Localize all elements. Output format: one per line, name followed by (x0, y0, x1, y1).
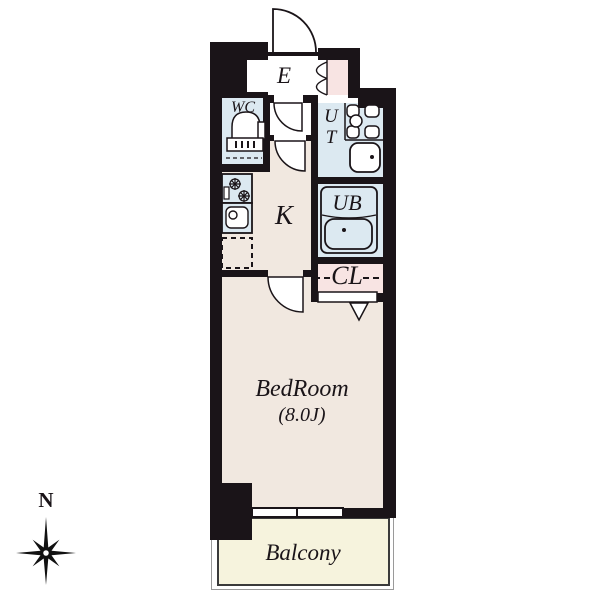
kitchen-door-swing-icon (275, 141, 305, 171)
wc-label: WC (231, 99, 255, 117)
bedroom-label: BedRoom (8.0J) (255, 376, 348, 428)
utility-label: U T (324, 106, 338, 148)
utility-label-line1: U (324, 106, 338, 127)
kitchen-label: K (275, 200, 293, 231)
compass-rose-icon (16, 517, 76, 585)
kitchen-sink-icon (222, 203, 252, 233)
unit-bath-label: UB (332, 190, 361, 216)
hallway-door-swing-icon (274, 103, 302, 131)
bedroom-door-swing-icon (268, 277, 303, 312)
utility-label-line2: T (324, 127, 338, 148)
compass-north-label: N (38, 488, 53, 513)
window-icon (252, 508, 343, 517)
closet-label: CL (331, 261, 363, 291)
washbasin-icon (350, 143, 380, 172)
floor-plan: N E WC U T UB K CL BedRoom (8.0J) Balcon… (0, 0, 600, 600)
entrance-door-swing-icon (273, 9, 316, 52)
laundry-counter-icon (345, 103, 383, 140)
bedroom-size: (8.0J) (255, 402, 348, 428)
stove-icon (222, 174, 252, 203)
entrance-label: E (277, 63, 291, 89)
balcony-label: Balcony (265, 540, 340, 566)
toilet-icon (226, 112, 265, 158)
bedroom-name: BedRoom (255, 376, 348, 402)
closet-door-arrow-icon (318, 292, 377, 320)
fridge-space-dashed-icon (222, 238, 252, 268)
cabinet-double-door-icon (317, 60, 328, 95)
